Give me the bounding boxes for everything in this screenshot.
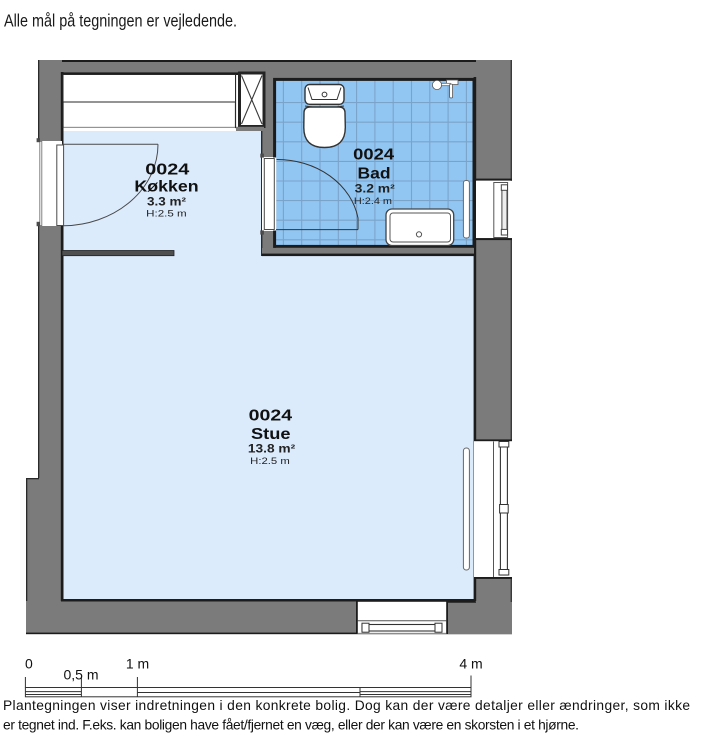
svg-text:13.8 m²: 13.8 m² bbox=[248, 443, 295, 455]
svg-text:Køkken: Køkken bbox=[134, 178, 198, 195]
svg-text:0: 0 bbox=[25, 656, 33, 672]
svg-text:0024: 0024 bbox=[249, 408, 293, 425]
svg-text:H:2.5 m: H:2.5 m bbox=[146, 209, 187, 220]
svg-text:Alle mål på tegningen er vejle: Alle mål på tegningen er vejledende. bbox=[4, 11, 237, 31]
svg-text:Plantegningen viser indretning: Plantegningen viser indretningen i den k… bbox=[3, 698, 690, 713]
svg-text:Stue: Stue bbox=[251, 426, 291, 443]
svg-text:H:2.5 m: H:2.5 m bbox=[250, 456, 290, 467]
svg-text:0,5 m: 0,5 m bbox=[63, 667, 98, 683]
svg-text:3.3 m²: 3.3 m² bbox=[147, 197, 186, 209]
svg-text:0024: 0024 bbox=[353, 147, 394, 164]
svg-text:1 m: 1 m bbox=[126, 656, 149, 672]
svg-text:Bad: Bad bbox=[358, 166, 391, 183]
svg-text:H:2.4 m: H:2.4 m bbox=[354, 196, 392, 207]
svg-text:4 m: 4 m bbox=[459, 656, 482, 672]
svg-text:er tegnet ind. F.eks. kan boli: er tegnet ind. F.eks. kan boligen have f… bbox=[3, 718, 579, 733]
svg-text:0024: 0024 bbox=[145, 162, 189, 179]
svg-text:3.2 m²: 3.2 m² bbox=[355, 184, 395, 196]
